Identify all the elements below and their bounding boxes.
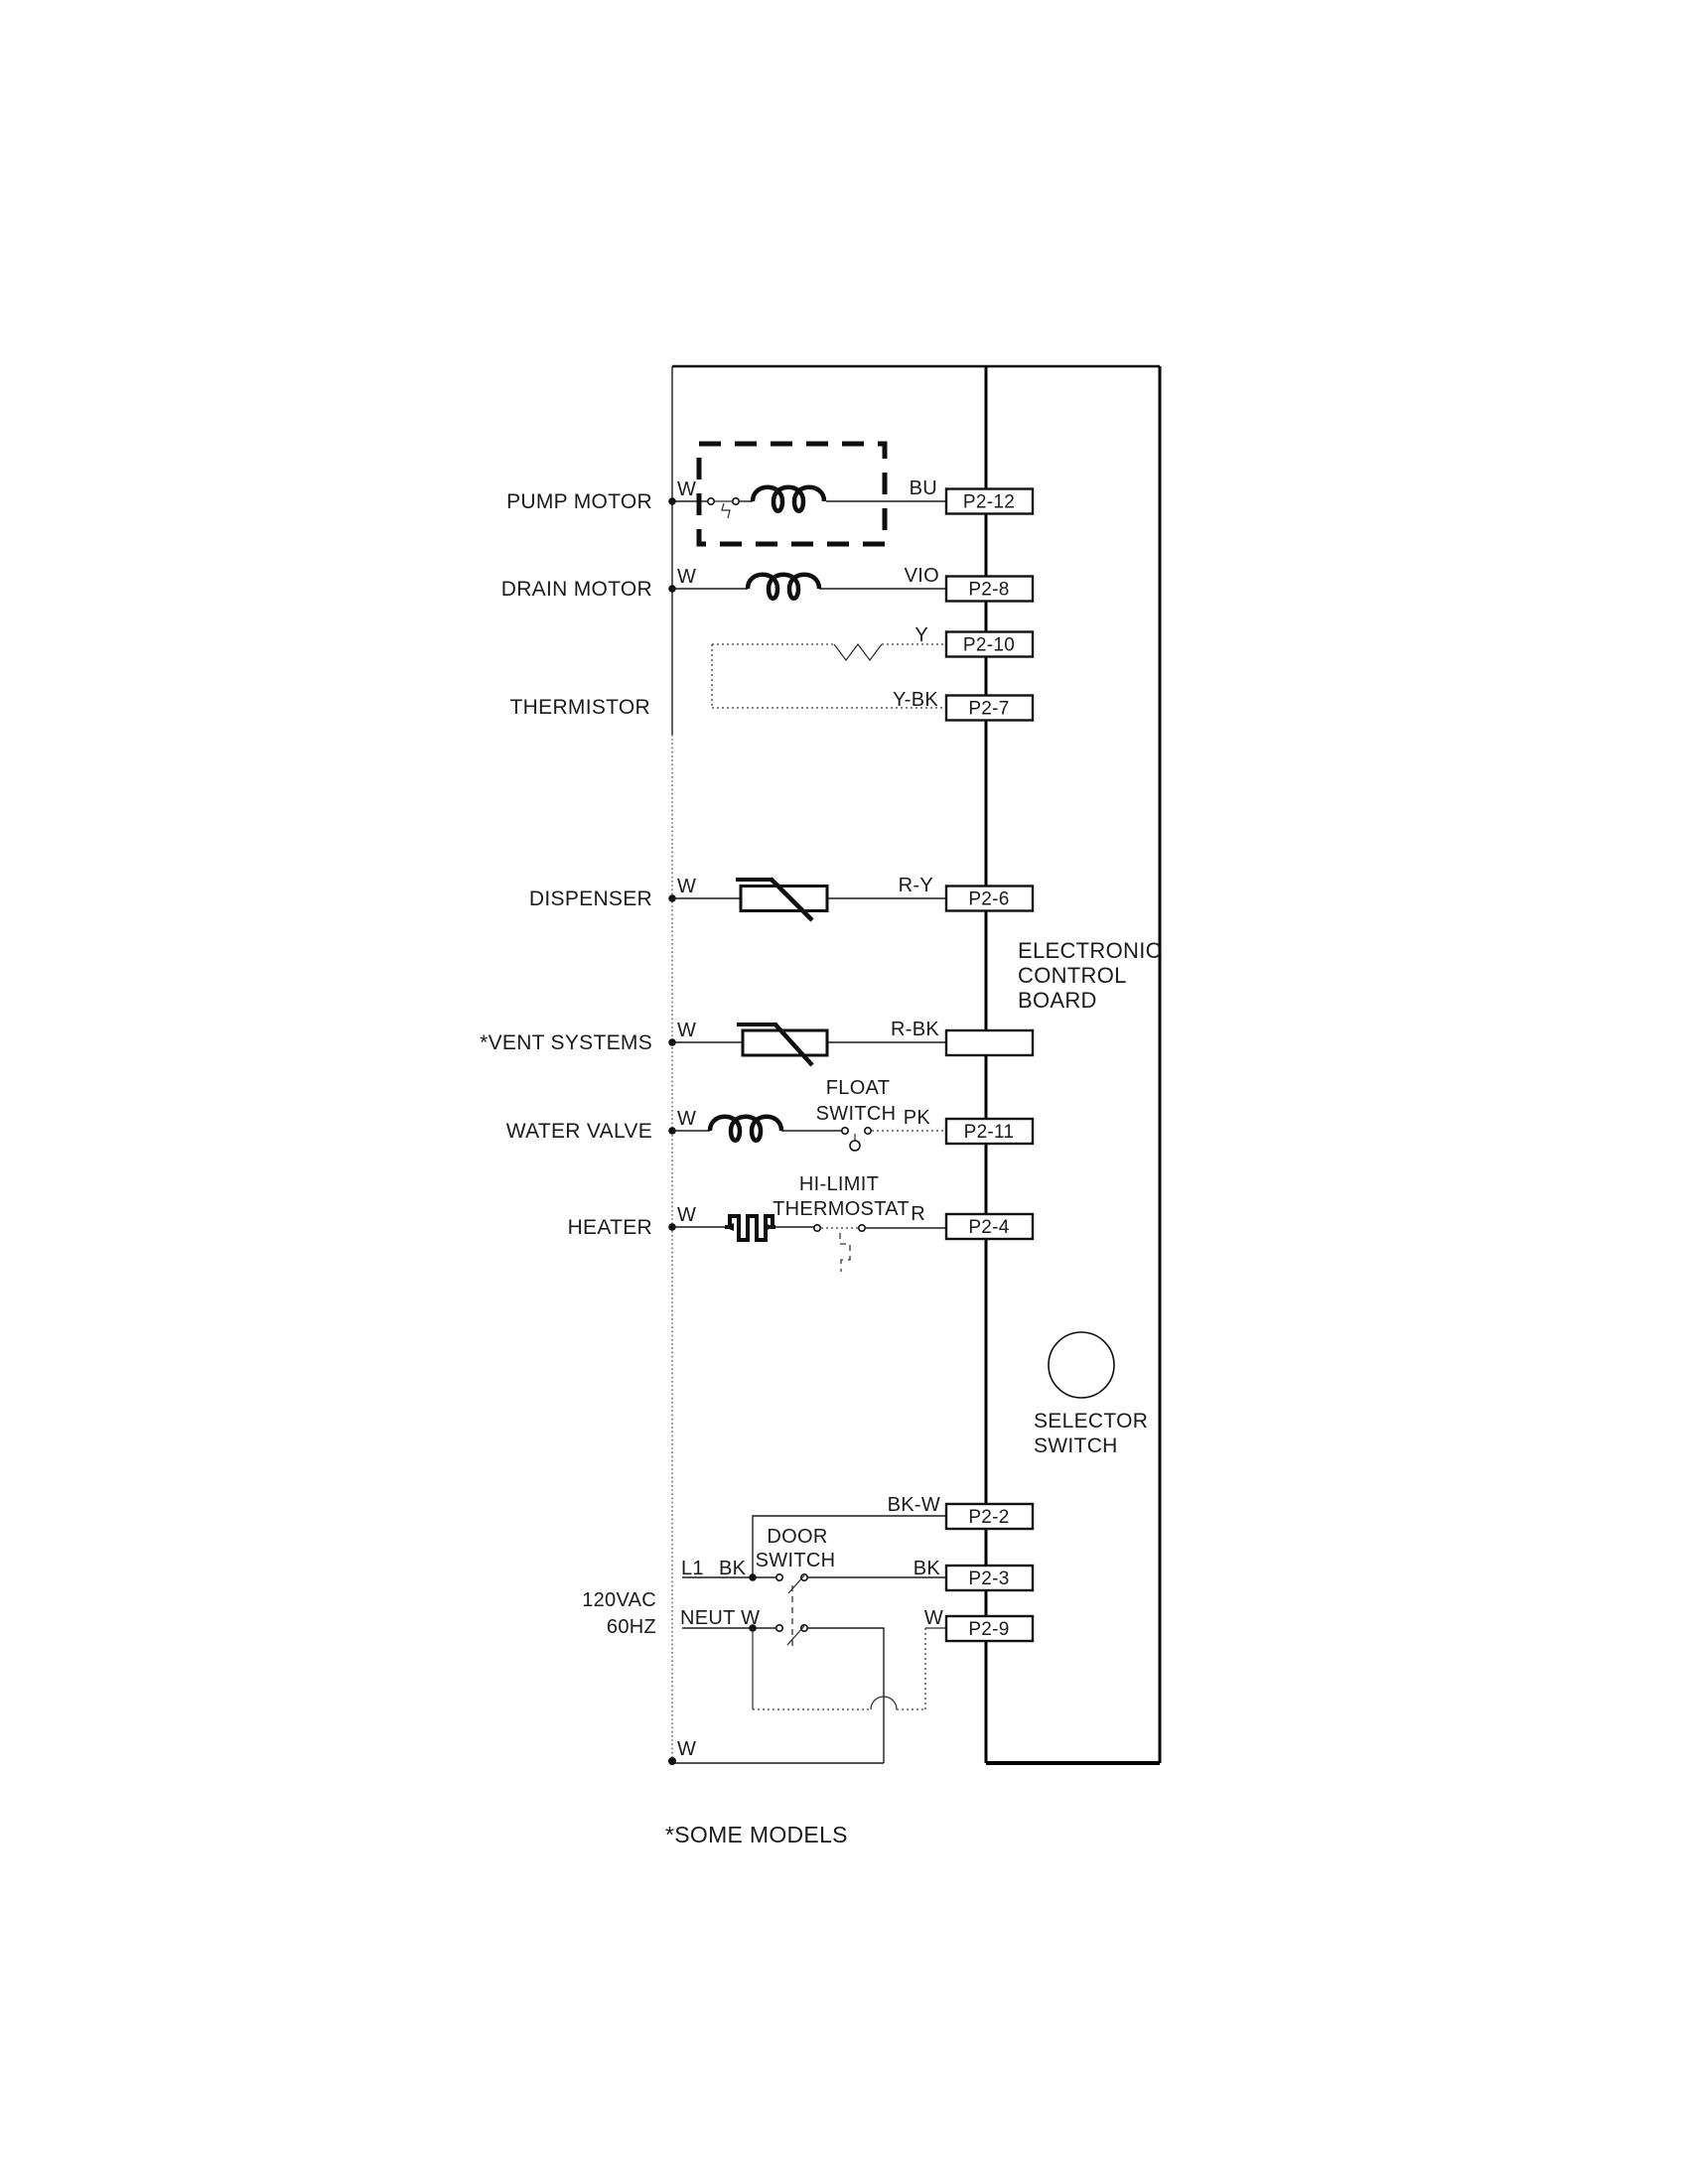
power-section: BK-W P2-2 DOOR SWITCH L1 BK BK P2-3 NEUT… bbox=[582, 1494, 1033, 1763]
wire-color-label: W bbox=[924, 1607, 943, 1629]
switch-contact bbox=[733, 498, 739, 504]
pump-motor-label: PUMP MOTOR bbox=[506, 490, 652, 513]
heater-row: HEATER W HI-LIMIT THERMOSTAT R P2-4 bbox=[568, 1173, 1033, 1272]
selector-switch-label-line1: SELECTOR bbox=[1034, 1410, 1148, 1433]
wire-color-label: W bbox=[677, 876, 696, 897]
selector-switch-label-line2: SWITCH bbox=[1034, 1434, 1118, 1457]
pump-motor-dashed-enclosure bbox=[699, 444, 885, 544]
float-ball bbox=[850, 1141, 860, 1151]
heater-label: HEATER bbox=[568, 1216, 652, 1239]
vent-systems-row: *VENT SYSTEMS W R-BK bbox=[480, 1019, 1033, 1065]
footnote: *SOME MODELS bbox=[665, 1822, 848, 1847]
dispenser-row: DISPENSER W R-Y P2-6 bbox=[529, 875, 1033, 920]
connector-label: P2-6 bbox=[968, 889, 1009, 910]
wire-color-label: PK bbox=[904, 1107, 931, 1129]
thermistor-rows: THERMISTOR Y Y-BK P2-10 P2-7 bbox=[510, 624, 1033, 721]
wire-color-label: R bbox=[911, 1203, 925, 1225]
wire-color-label: R-Y bbox=[899, 875, 933, 896]
wire-color-label: BK-W bbox=[888, 1494, 940, 1516]
wire-color-label: BK bbox=[914, 1558, 941, 1579]
schematic-page: W PUMP MOTOR W BU P2-12 DRAIN MOTOR W VI… bbox=[0, 0, 1688, 2184]
connector-label: P2-4 bbox=[968, 1217, 1009, 1238]
thermostat-actuator-hook bbox=[840, 1233, 850, 1272]
drain-motor-coil bbox=[748, 575, 819, 599]
door-switch-contact bbox=[776, 1625, 782, 1631]
wire-color-label: W bbox=[677, 566, 696, 588]
float-switch-contact bbox=[842, 1128, 848, 1134]
wire-color-label: Y bbox=[914, 624, 928, 646]
door-switch-blade bbox=[788, 1575, 804, 1593]
hi-limit-label-line1: HI-LIMIT bbox=[799, 1173, 879, 1195]
neut-label: NEUT W bbox=[680, 1607, 760, 1629]
float-switch-contact bbox=[865, 1128, 871, 1134]
float-switch-label-line1: FLOAT bbox=[826, 1077, 890, 1099]
centrifugal-switch-hook bbox=[722, 503, 730, 518]
door-switch-label-line2: SWITCH bbox=[756, 1550, 836, 1571]
connector-label: P2-12 bbox=[963, 492, 1015, 513]
connector-label: P2-11 bbox=[964, 1122, 1015, 1143]
wire-color-label: W bbox=[677, 1020, 696, 1041]
selector-switch: SELECTOR SWITCH bbox=[1034, 1332, 1148, 1457]
board-title-line3: BOARD bbox=[1018, 988, 1097, 1013]
float-switch-label-line2: SWITCH bbox=[816, 1103, 897, 1125]
bus-junction-dot bbox=[668, 1757, 676, 1765]
connector-label: P2-3 bbox=[968, 1569, 1009, 1589]
wiring-diagram: W PUMP MOTOR W BU P2-12 DRAIN MOTOR W VI… bbox=[0, 0, 1688, 2184]
bus-w-label: W bbox=[677, 1738, 696, 1760]
connector-label: P2-8 bbox=[968, 580, 1009, 601]
connector-label: P2-7 bbox=[968, 699, 1009, 720]
hi-limit-label-line2: THERMOSTAT bbox=[773, 1198, 910, 1220]
door-switch-blade bbox=[787, 1626, 804, 1645]
wire-color-label: VIO bbox=[905, 565, 939, 587]
dispenser-label: DISPENSER bbox=[529, 887, 652, 910]
drain-motor-label: DRAIN MOTOR bbox=[501, 578, 652, 601]
board-title-line2: CONTROL bbox=[1018, 963, 1127, 988]
loop-up-wire bbox=[897, 1628, 925, 1709]
switched-neutral-riser bbox=[807, 1628, 884, 1763]
thermostat-contact bbox=[814, 1225, 820, 1231]
thermistor-label: THERMISTOR bbox=[510, 696, 650, 719]
wire-color-label: BU bbox=[910, 478, 937, 499]
water-valve-label: WATER VALVE bbox=[506, 1120, 652, 1143]
water-valve-row: WATER VALVE W FLOAT SWITCH PK P2-11 bbox=[506, 1077, 1033, 1151]
wire-color-label: W bbox=[677, 1108, 696, 1130]
pump-motor-row: PUMP MOTOR W BU P2-12 bbox=[506, 444, 1033, 544]
wire-color-label: W bbox=[677, 478, 696, 500]
connector-label: P2-9 bbox=[968, 1619, 1009, 1640]
voltage-label: 120VAC bbox=[582, 1589, 656, 1611]
wire-color-label: R-BK bbox=[891, 1019, 939, 1040]
l1-label: L1 bbox=[681, 1558, 704, 1579]
drain-motor-row: DRAIN MOTOR W VIO P2-8 bbox=[501, 565, 1033, 602]
wire-color-label: W bbox=[677, 1204, 696, 1226]
board-title-line1: ELECTRONIC bbox=[1018, 938, 1162, 963]
door-switch-contact bbox=[776, 1574, 782, 1580]
water-valve-coil bbox=[710, 1117, 781, 1141]
vent-systems-label: *VENT SYSTEMS bbox=[480, 1031, 652, 1054]
thermistor-resistor-zigzag bbox=[834, 644, 882, 660]
connector-unlabeled bbox=[946, 1030, 1033, 1055]
control-board-title: ELECTRONIC CONTROL BOARD bbox=[1018, 938, 1162, 1013]
connector-label: P2-2 bbox=[968, 1507, 1009, 1528]
switch-contact bbox=[708, 498, 714, 504]
door-switch-label-line1: DOOR bbox=[767, 1526, 827, 1548]
frequency-label: 60HZ bbox=[607, 1616, 656, 1638]
wire-color-label: Y-BK bbox=[893, 689, 938, 711]
pump-motor-coil bbox=[753, 487, 824, 511]
wire-color-label: BK bbox=[719, 1558, 747, 1579]
junction-dot bbox=[749, 1573, 757, 1581]
thermostat-contact bbox=[859, 1225, 865, 1231]
connector-label: P2-10 bbox=[963, 635, 1015, 656]
selector-switch-circle bbox=[1049, 1332, 1114, 1398]
